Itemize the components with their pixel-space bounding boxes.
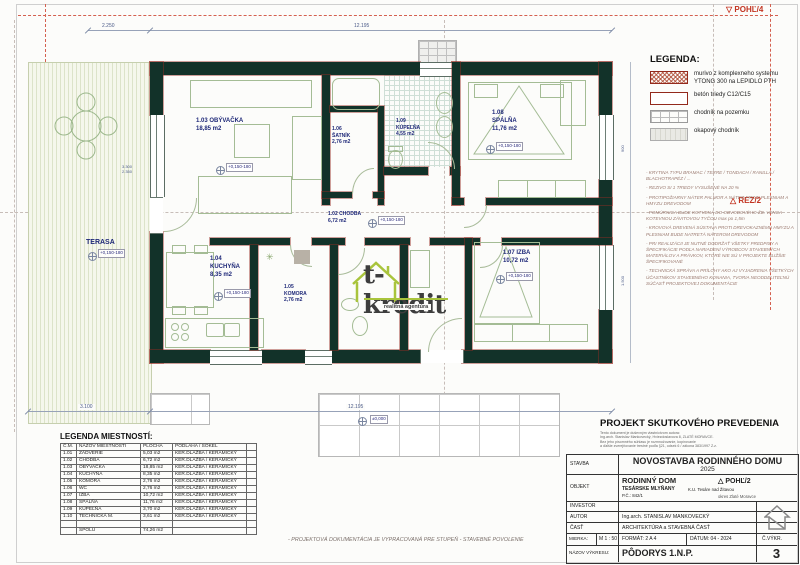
divider (566, 501, 797, 502)
room-label-izba: 1.07 IZBA10,72 m2 (503, 250, 530, 266)
cell: OBÝVAČKA (77, 465, 141, 472)
cell: 3,61 m2 (141, 514, 173, 521)
objekt-label: OBJEKT (570, 484, 589, 490)
table-header-row: Č.M.NÁZOV MIESTNOSTIPLOCHAPODLAHA / SOKE… (61, 444, 257, 451)
divider (596, 533, 597, 545)
room-id: 1.05 (284, 284, 294, 290)
level-mark-icon (214, 292, 223, 301)
dimension-value: 1.500 (620, 276, 625, 286)
legend-item-label: chodník na pozemku (694, 110, 749, 118)
drawing-number: 3 (756, 546, 797, 561)
cell (247, 451, 257, 458)
level-mark-icon (368, 219, 377, 228)
legend: LEGENDA: murivo z komplexneho systemu YT… (650, 54, 800, 146)
cell (247, 486, 257, 493)
level-mark-icon (358, 417, 367, 426)
copyright-line: a ďalšie zverejňovanie trestné podľa §21… (600, 444, 717, 448)
wall (465, 238, 472, 350)
chair (194, 306, 208, 315)
room-label-komora: 1.05KOMORA2,76 m2 (284, 284, 307, 304)
cell: 1.09 (61, 507, 77, 514)
dimension-value: 3.100 (78, 404, 95, 410)
objekt-parcel: P.Č.: 842/1 (622, 493, 643, 498)
wall (365, 238, 410, 245)
window (599, 115, 614, 180)
boiler (294, 250, 310, 264)
cell: 1.04 (61, 472, 77, 479)
wall (486, 198, 612, 205)
view-marker-pohl4: ▽ POHĽ/4 (726, 5, 763, 14)
table-row: 1.01ZÁDVERIE5,03 m2KER.DLAŽBA / KERAMICK… (61, 451, 257, 458)
room-name: ŠATNÍK (332, 133, 350, 139)
cell: KER.DLAŽBA / KERAMICKÝ (173, 479, 247, 486)
cell (247, 507, 257, 514)
room-id: 1.08 (492, 110, 504, 116)
window (210, 350, 262, 365)
note: - REZIVO SI 1 TRIEDY VYSUŠENÉ NA 20 % (646, 185, 800, 191)
walkway (318, 393, 560, 457)
room-name: IZBA (516, 250, 530, 256)
room-area: 8,35 m2 (210, 272, 232, 278)
dimension-value: 900 (620, 145, 625, 152)
legend-item: betón triedy C12/C15 (650, 92, 800, 105)
room-label-spalna: 1.08SPÁLŇA11,76 m2 (492, 110, 517, 133)
note: - POMÚRNICA BUDE KOTVENÁ DO OBVODOVÉHO Ž… (646, 210, 800, 222)
wall (452, 62, 612, 75)
cell (247, 514, 257, 521)
wall (384, 167, 428, 175)
wall (322, 75, 330, 205)
sofa (198, 176, 292, 214)
drip-walkway-swatch-icon (650, 128, 688, 141)
cast-value: ARCHITEKTÚRA a STAVEBNÁ ČASŤ (622, 525, 710, 531)
cell: 1.07 (61, 493, 77, 500)
table-row: 1.10TECHNICKÁ M.3,61 m2KER.DLAŽBA / KERA… (61, 514, 257, 521)
cell: 18,85 m2 (141, 465, 173, 472)
wall (330, 245, 338, 350)
dimension-line (88, 30, 612, 31)
room-legend: LEGENDA MIESTNOSTÍ: Č.M.NÁZOV MIESTNOSTI… (60, 432, 260, 535)
stove-burner-icon (171, 333, 179, 341)
table-row: 1.02CHODBA6,72 m2KER.DLAŽBA / KERAMICKÝ (61, 458, 257, 465)
room-label-obyvacka: 1.03 OBÝVAČKA18,85 m2 (196, 118, 243, 134)
stavba-value: NOVOSTAVBA RODINNÉHO DOMU (618, 456, 797, 466)
washbasin (436, 116, 453, 138)
concrete-swatch-icon (650, 92, 688, 105)
legend-item: chodník na pozemku (650, 110, 800, 123)
window (305, 350, 332, 365)
cell: 2,76 m2 (141, 479, 173, 486)
cell (173, 521, 247, 528)
elevation-label: +0,150-180 (226, 163, 253, 172)
stavba-year: 2025 (618, 466, 797, 473)
dimension-line (630, 62, 631, 363)
chair (172, 245, 186, 254)
room-id: 1.02 (328, 211, 338, 217)
ground-level-label: ±0,000 (370, 415, 388, 424)
dimension-value: 12.195 (346, 404, 365, 410)
triangle-down-icon: ▽ (726, 5, 732, 14)
elevation-label: +0,150-180 (378, 216, 405, 225)
desk (474, 324, 588, 342)
wardrobe (498, 180, 586, 198)
divider (686, 533, 687, 545)
window-dimension: 3.3002.350 (122, 164, 132, 174)
cell (247, 500, 257, 507)
cell: KER.DLAŽBA / KERAMICKÝ (173, 472, 247, 479)
room-id: 1.04 (210, 256, 222, 262)
room-id: 1.09 (396, 118, 406, 124)
dimension-value: 12.195 (352, 23, 371, 29)
legend-item-label: okapový chodník (694, 128, 739, 136)
total-value: 74,26 m2 (141, 528, 173, 535)
cell (247, 458, 257, 465)
copyright-line: Ing.arch. Stanislav Mankovecký, Hviezdos… (600, 435, 717, 439)
cell: 5,03 m2 (141, 451, 173, 458)
elevation-label: +0,150-180 (224, 289, 251, 298)
cell: 1.10 (61, 514, 77, 521)
cell (61, 521, 77, 528)
cell: KER.DLAŽBA / KERAMICKÝ (173, 514, 247, 521)
view-marker-pohl2: △ POHĽ/2 (718, 477, 751, 485)
cell: WC (77, 486, 141, 493)
investor-label: INVESTOR (570, 503, 595, 509)
copyright-text: Tento dokument je duševným vlastníctvom … (600, 431, 717, 448)
terrace-label: TERASA (86, 238, 115, 247)
note: - PROTIPOŽIARNY NÁTER PALMOR A NÁTER PRO… (646, 195, 800, 207)
room-name: KUCHYŇA (210, 264, 240, 270)
mierka-label: MIERKA: (569, 536, 588, 541)
cell: 2,76 m2 (141, 486, 173, 493)
datum-value: DÁTUM: 04 - 2024 (690, 536, 732, 542)
title-block-header: PROJEKT SKUTKOVÉHO PREVEDENIA (600, 418, 779, 429)
pillow (474, 84, 498, 98)
cell: 6,72 m2 (141, 458, 173, 465)
stove-burner-icon (171, 323, 179, 331)
watermark: t-kredit realitná agentúra (348, 256, 458, 310)
nazov-value: PÔDORYS 1.N.P. (622, 548, 693, 558)
mierka-value: M 1 : 50 (599, 536, 617, 542)
dimension-value: 2.350 (122, 169, 132, 174)
wall (322, 192, 352, 198)
chair (172, 306, 186, 315)
col-header: PODLAHA / SOKEL (173, 444, 247, 451)
room-id: 1.07 (503, 250, 515, 256)
room-label-chodba: 1.02 CHODBA6,72 m2 (328, 211, 361, 224)
walkway-patch (418, 40, 457, 64)
level-mark-icon (496, 275, 505, 284)
wall (599, 310, 612, 363)
cell: KER.DLAŽBA / KERAMICKÝ (173, 465, 247, 472)
view-marker-label: POHĽ/2 (725, 478, 750, 485)
notes-block: - KRYTINA TYPU BRAMAC / TERRE / TONDACH … (646, 170, 800, 290)
cast-label: ČASŤ (570, 525, 583, 531)
cell: 1.03 (61, 465, 77, 472)
cabinet (292, 116, 322, 180)
walkway (150, 393, 210, 425)
window (420, 62, 452, 77)
autor-label: AUTOR (570, 514, 587, 520)
elevation-label: +0,150-180 (98, 249, 125, 258)
format-value: FORMÁT: 2 A 4 (622, 536, 656, 542)
wardrobe (560, 80, 586, 126)
dimension-value: 2.250 (100, 23, 117, 29)
objekt-town: TESÁRSKE MLYŇANY (622, 486, 675, 492)
terrace-table-icon (50, 86, 122, 166)
cell: KÚPEĽŇA (77, 507, 141, 514)
room-legend-title: LEGENDA MIESTNOSTÍ: (60, 432, 260, 441)
cell: 1.05 (61, 479, 77, 486)
divider (566, 533, 797, 534)
chair (194, 245, 208, 254)
window (599, 245, 614, 310)
divider (566, 511, 797, 512)
cell: 11,76 m2 (141, 500, 173, 507)
table-row-total: SPOLU74,26 m2 (61, 528, 257, 535)
room-area: 10,72 m2 (503, 258, 528, 264)
table-row: 1.04KUCHYŇA8,35 m2KER.DLAŽBA / KERAMICKÝ (61, 472, 257, 479)
wall (150, 62, 420, 75)
legend-item: murivo z komplexneho systemu YTONG 300 n… (650, 71, 800, 87)
wall (430, 238, 480, 245)
room-area: 6,72 m2 (328, 218, 346, 224)
cell: 1.02 (61, 458, 77, 465)
cell: 1.01 (61, 451, 77, 458)
room-area: 11,76 m2 (492, 126, 517, 132)
wall (462, 350, 612, 363)
table-row: 1.09KÚPEĽŇA3,70 m2KER.DLAŽBA / KERAMICKÝ (61, 507, 257, 514)
wall (378, 106, 384, 205)
cell: KER.DLAŽBA / KERAMICKÝ (173, 500, 247, 507)
toilet (388, 150, 403, 169)
bathtub (332, 78, 380, 110)
wall (599, 62, 612, 115)
cell: KER.DLAŽBA / KERAMICKÝ (173, 493, 247, 500)
window (150, 115, 165, 197)
room-name: KÚPEĽŇA (396, 125, 420, 131)
room-area: 2,76 m2 (284, 297, 302, 303)
cell: 8,35 m2 (141, 472, 173, 479)
legend-title: LEGENDA: (650, 54, 800, 65)
room-label-kupelna: 1.09KÚPEĽŇA4,55 m2 (396, 118, 420, 138)
watermark-tag-line: realitná agentúra (364, 298, 448, 318)
stove-burner-icon (181, 323, 189, 331)
cell (247, 528, 257, 535)
objekt-cadastre: K.U. Tesáre nad Žitavou (688, 487, 734, 492)
room-id: 1.06 (332, 126, 342, 132)
sink (224, 323, 240, 337)
elevation-label: +0,150-180 (496, 142, 523, 151)
boundary-line (18, 15, 778, 16)
level-mark-icon (486, 145, 495, 154)
cell (247, 479, 257, 486)
table-row: 1.03OBÝVAČKA18,85 m2KER.DLAŽBA / KERAMIC… (61, 465, 257, 472)
room-label-kuchyna: 1.04KUCHYŇA8,35 m2 (210, 256, 240, 279)
cell: KOMORA (77, 479, 141, 486)
autor-value: Ing.arch. STANISLAV MANKOVECKÝ (622, 514, 709, 520)
cvykr-label: Č.VÝKR. (762, 536, 782, 542)
level-mark-icon (88, 252, 97, 261)
sink (206, 323, 224, 337)
divider (566, 474, 797, 475)
washbasin (436, 92, 453, 114)
walkway-swatch-icon (650, 110, 688, 123)
wall (262, 350, 305, 363)
note: - PRI REALIZÁCII JE NUTNÉ DODRŽAŤ VŠETKY… (646, 241, 800, 266)
drawing-sheet: ▽ POHĽ/4 △ REZ/2 TERASA +0,150-180 (0, 0, 800, 565)
architect-house-icon (764, 504, 791, 531)
room-name: TERASA (86, 239, 115, 246)
door-opening (150, 197, 163, 234)
note: - TECHNICKÁ SPRÁVA A PRÍLOHY AKO AJ VYJA… (646, 268, 800, 287)
cell: IZBA (77, 493, 141, 500)
wall (452, 62, 460, 205)
room-name: KOMORA (284, 291, 307, 297)
total-label: SPOLU (77, 528, 141, 535)
objekt-district: okres Zlaté Moravce (718, 494, 756, 499)
cell (247, 472, 257, 479)
cell (173, 528, 247, 535)
room-area: 4,55 m2 (396, 131, 414, 137)
wall (373, 192, 384, 198)
cell (247, 493, 257, 500)
wall (210, 238, 290, 245)
cell: KER.DLAŽBA / KERAMICKÝ (173, 451, 247, 458)
cell: 3,70 m2 (141, 507, 173, 514)
table-row-empty (61, 521, 257, 528)
col-header: Č.M. (61, 444, 77, 451)
nazov-label: NÁZOV VÝKRESU: (569, 550, 609, 555)
footer-note: - PROJEKTOVÁ DOKUMENTÁCIA JE VYPRACOVANÁ… (288, 537, 524, 543)
wall (312, 238, 345, 245)
title-block: PROJEKT SKUTKOVÉHO PREVEDENIA Tento doku… (566, 418, 798, 564)
stavba-label: STAVBA (570, 461, 589, 467)
table-row: 1.07IZBA10,72 m2KER.DLAŽBA / KERAMICKÝ (61, 493, 257, 500)
drain-symbol-icon: ✳ (266, 252, 274, 263)
room-name: OBÝVAČKA (209, 118, 243, 124)
objekt-value: RODINNÝ DOM (622, 476, 676, 485)
level-mark-icon (216, 166, 225, 175)
axis-line (14, 20, 15, 432)
view-marker-label: POHĽ/4 (734, 5, 763, 14)
wall (332, 350, 420, 363)
room-name: SPÁLŇA (492, 118, 517, 124)
col-header: PLOCHA (141, 444, 173, 451)
triangle-up-icon: △ (718, 478, 723, 485)
table-row: 1.08SPÁLŇA11,76 m2KER.DLAŽBA / KERAMICKÝ (61, 500, 257, 507)
dimension-line (28, 411, 612, 412)
wall (150, 232, 163, 363)
stove-burner-icon (181, 333, 189, 341)
wall (150, 350, 210, 363)
cell (247, 465, 257, 472)
col-header: NÁZOV MIESTNOSTI (77, 444, 141, 451)
cell (141, 521, 173, 528)
wall (599, 180, 612, 245)
cell: CHODBA (77, 458, 141, 465)
col-header (247, 444, 257, 451)
room-table: Č.M.NÁZOV MIESTNOSTIPLOCHAPODLAHA / SOKE… (60, 443, 257, 535)
legend-item-label: betón triedy C12/C15 (694, 92, 751, 100)
cell: SPÁLŇA (77, 500, 141, 507)
cell: KER.DLAŽBA / KERAMICKÝ (173, 507, 247, 514)
boundary-line (45, 4, 46, 62)
ytong-hatch-swatch-icon (650, 71, 688, 84)
cell: 1.08 (61, 500, 77, 507)
cell: TECHNICKÁ M. (77, 514, 141, 521)
cell: 1.06 (61, 486, 77, 493)
dining-table (166, 252, 214, 308)
note: - KROVOVÁ DREVENÁ SÚSTAVA PROTI DREVOKAZ… (646, 225, 800, 237)
cell: 10,72 m2 (141, 493, 173, 500)
legend-item-label: murivo z komplexneho systemu YTONG 300 n… (694, 71, 800, 87)
cell (77, 521, 141, 528)
cell: KER.DLAŽBA / KERAMICKÝ (173, 458, 247, 465)
room-label-satnik: 1.06ŠATNÍK2,76 m2 (332, 126, 350, 146)
cell: KUCHYŇA (77, 472, 141, 479)
cell: ZÁDVERIE (77, 451, 141, 458)
table-row: 1.05KOMORA2,76 m2KER.DLAŽBA / KERAMICKÝ (61, 479, 257, 486)
room-name: CHODBA (339, 211, 361, 217)
sofa (190, 80, 312, 108)
cell (61, 528, 77, 535)
watermark-tagline: realitná agentúra (381, 304, 431, 310)
wall (150, 62, 163, 115)
room-area: 2,76 m2 (332, 139, 350, 145)
note: - KRYTINA TYPU BRAMAC / TERRE / TONDACH … (646, 170, 800, 182)
table-row: 1.06WC2,76 m2KER.DLAŽBA / KERAMICKÝ (61, 486, 257, 493)
wall (452, 198, 464, 205)
cell (247, 521, 257, 528)
divider (566, 522, 797, 523)
room-area: 18,85 m2 (196, 126, 221, 132)
elevation-label: +0,150-180 (506, 272, 533, 281)
cell: KER.DLAŽBA / KERAMICKÝ (173, 486, 247, 493)
legend-item: okapový chodník (650, 128, 800, 141)
room-id: 1.03 (196, 118, 208, 124)
